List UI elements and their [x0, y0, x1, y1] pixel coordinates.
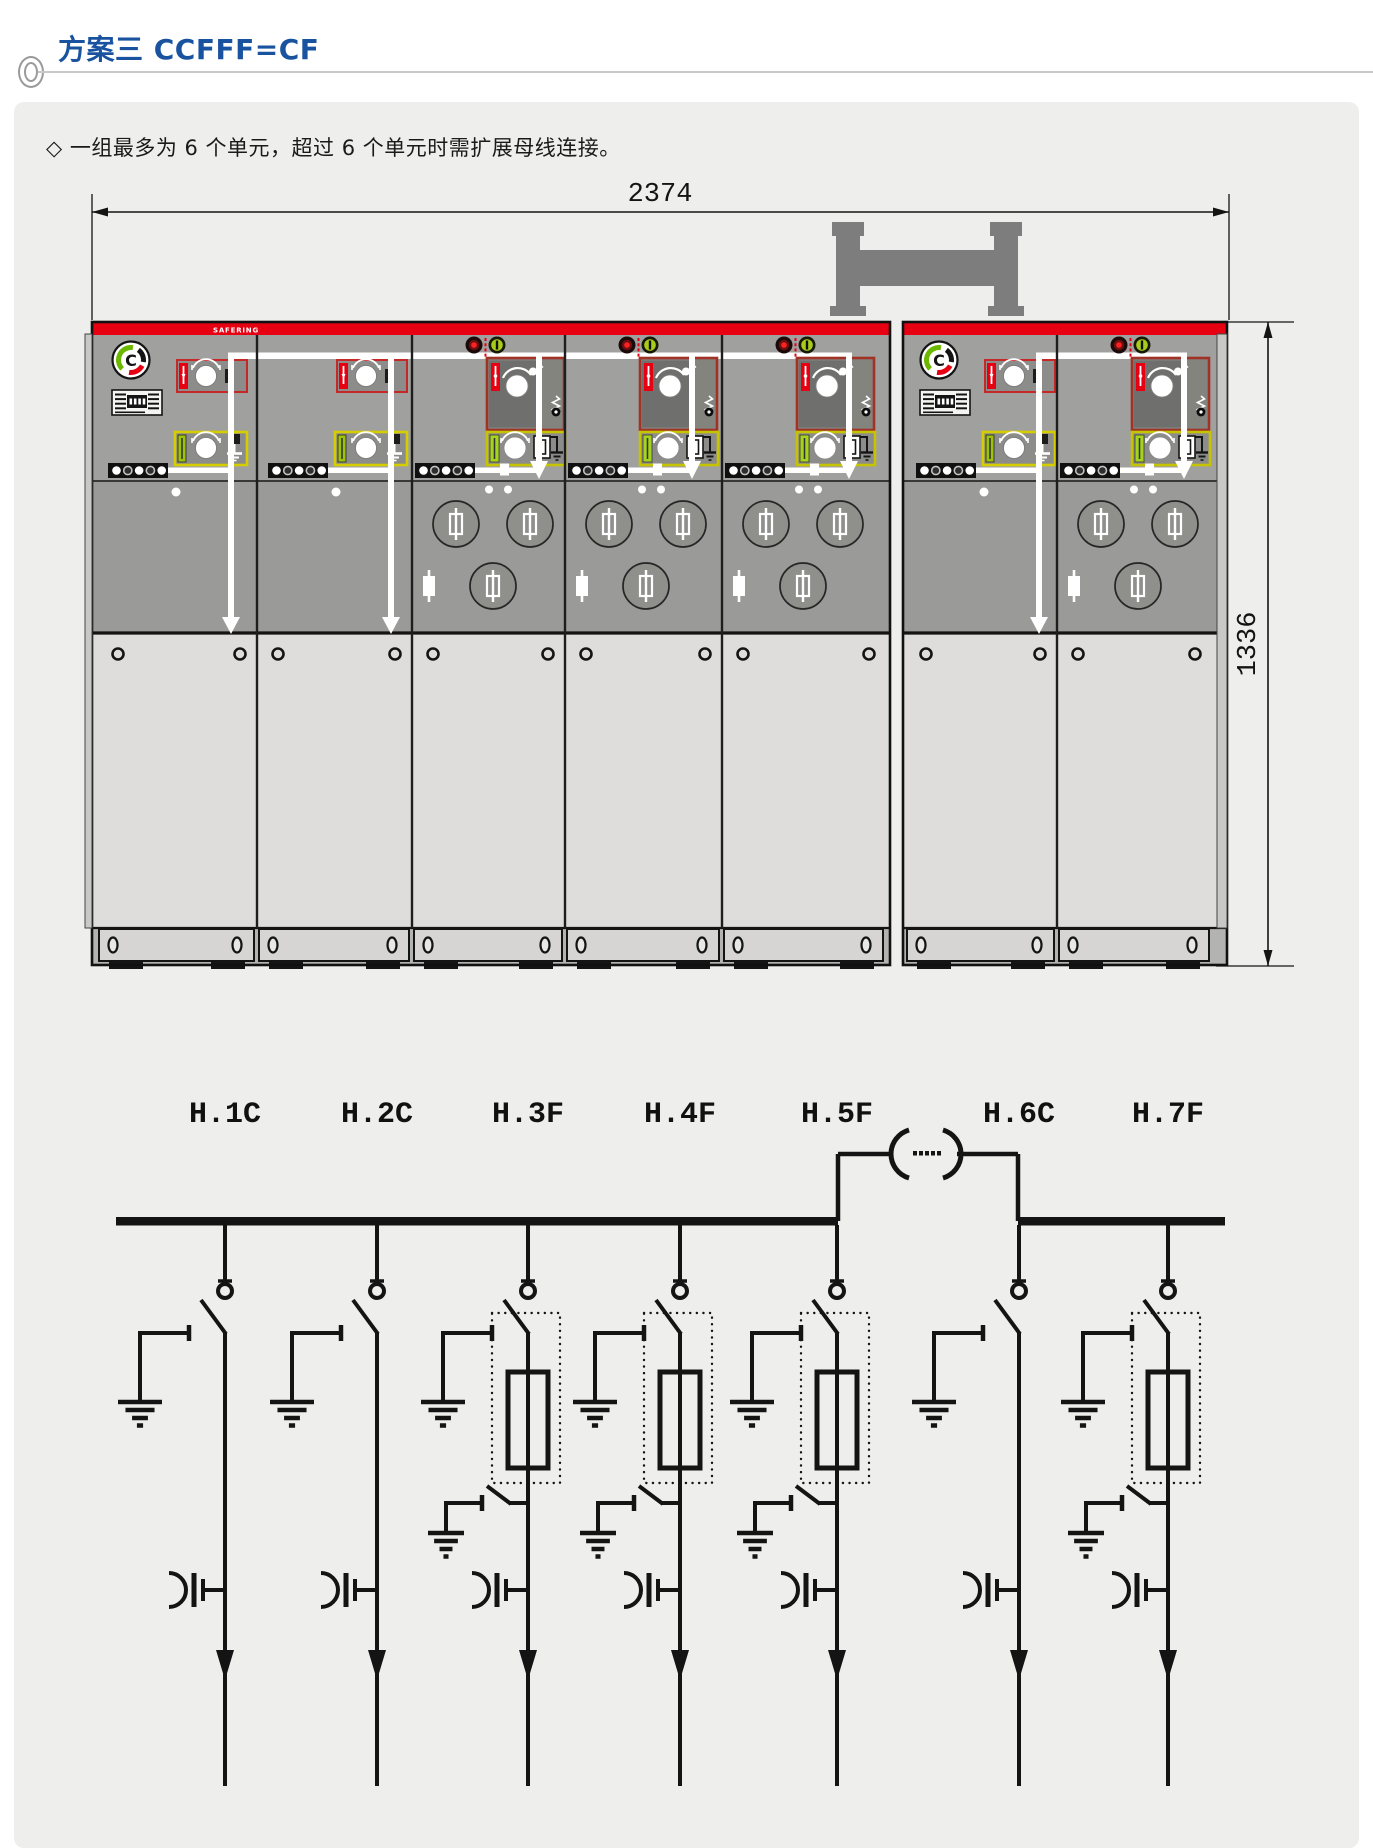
unit-label: H.6C	[983, 1098, 1055, 1132]
cabinet-overlay: SAFERING	[213, 327, 259, 335]
unit-label: H.3F	[492, 1098, 564, 1132]
feeder-H.6C: H.6C	[912, 1098, 1055, 1786]
svg-text:C: C	[125, 351, 137, 370]
height-dimension-value: 1336	[1234, 612, 1264, 677]
dim-arrow-down	[1264, 950, 1273, 966]
unit-label: H.2C	[341, 1098, 413, 1132]
feeder-H.5F: H.5F	[730, 1098, 873, 1786]
feeder-H.4F: H.4F	[573, 1098, 716, 1786]
svg-text:C: C	[933, 351, 945, 370]
dim-arrow-left	[92, 208, 108, 217]
dim-arrow-right	[1213, 208, 1229, 217]
width-dimension-value: 2374	[628, 180, 693, 210]
feeder-H.1C: H.1C	[118, 1098, 261, 1786]
single-line-diagram: H.1CH.2CH.3FH.4FH.5FH.6CH.7F	[116, 1098, 1225, 1786]
unit-label: H.5F	[801, 1098, 873, 1132]
feeder-H.3F: H.3F	[421, 1098, 564, 1786]
dimension-width: 2374	[92, 180, 1229, 320]
feeder-H.7F: H.7F	[1061, 1098, 1204, 1786]
figure-canvas: CC SAFERING 2374 1336 H.1CH.2CH.3FH.4FH.…	[0, 0, 1373, 1848]
unit-label: H.7F	[1132, 1098, 1204, 1132]
catalog-page: 方案三 CCFFF=CF ◇ 一组最多为 6 个单元，超过 6 个单元时需扩展母…	[0, 0, 1373, 1848]
unit-label: H.4F	[644, 1098, 716, 1132]
brand-label: SAFERING	[213, 327, 259, 335]
feeder-H.2C: H.2C	[270, 1098, 413, 1786]
dim-arrow-up	[1264, 322, 1273, 338]
unit-label: H.1C	[189, 1098, 261, 1132]
